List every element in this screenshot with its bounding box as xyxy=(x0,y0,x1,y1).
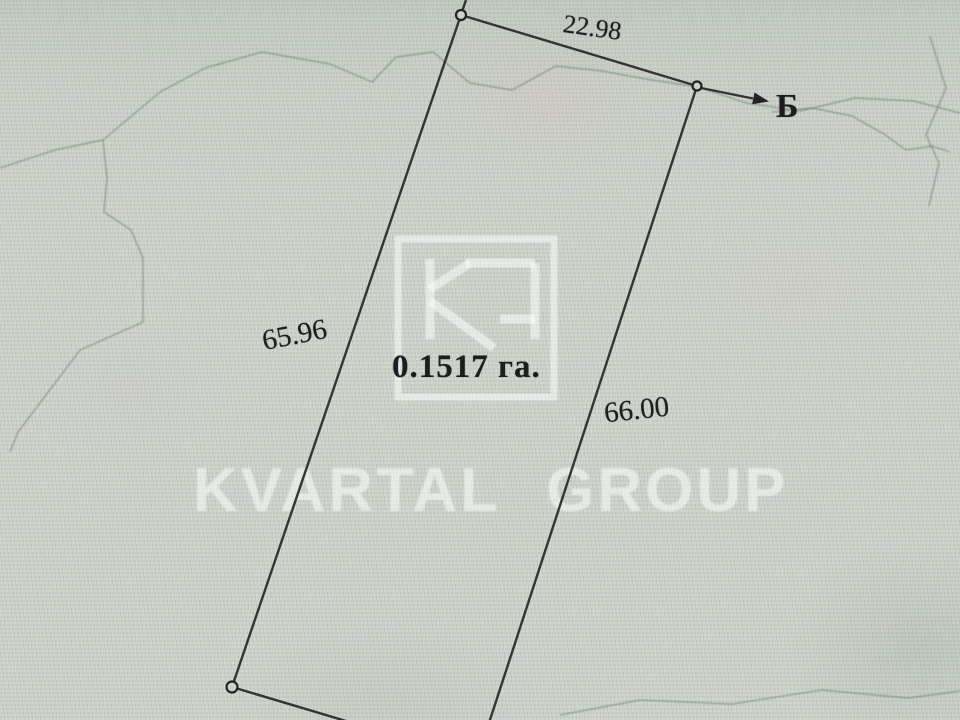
direction-arrow-shaft xyxy=(701,88,753,99)
vertex-marker-top-right xyxy=(693,82,702,91)
boundary-bottom-line xyxy=(232,687,356,720)
cadastral-plan: KVARTAL GROUP 22.98 65.96 66.00 0.1517 г… xyxy=(0,0,960,720)
direction-point-label: Б xyxy=(776,88,798,126)
direction-arrow-head-icon xyxy=(752,93,769,105)
parcel-area-label: 0.1517 га. xyxy=(392,349,541,386)
vertex-marker-bottom-left xyxy=(227,682,238,693)
vertex-marker-top-left xyxy=(456,10,466,20)
dimension-label-right: 66.00 xyxy=(602,391,670,431)
